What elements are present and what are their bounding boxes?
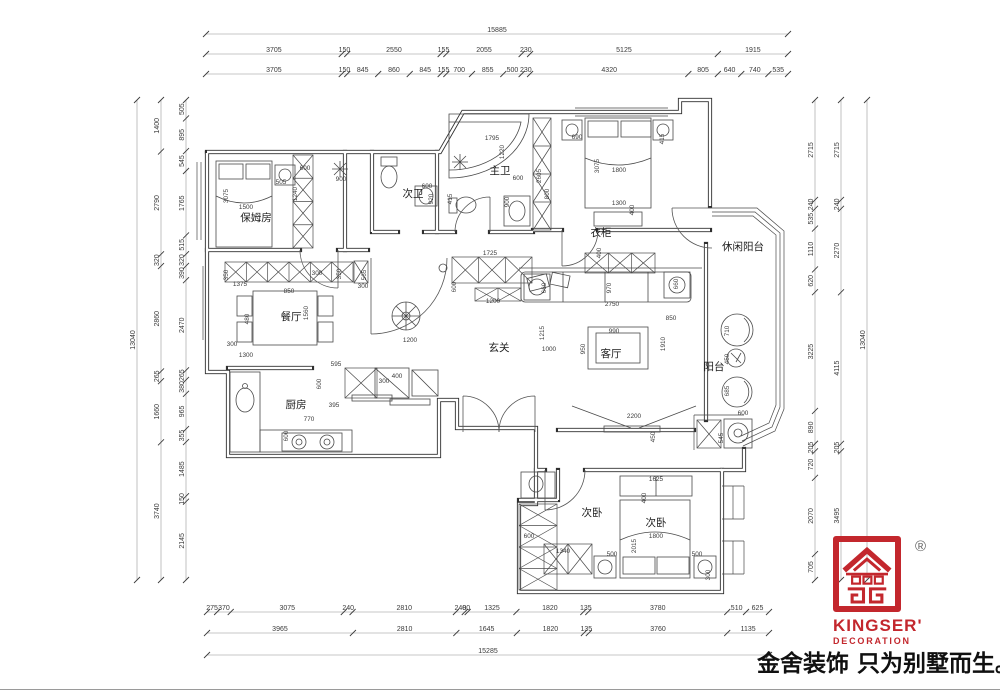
room-label: 客厅: [601, 347, 622, 360]
dim-label: 370: [218, 605, 230, 612]
dim-annotation: 1215: [539, 325, 546, 340]
dim-annotation: 600: [513, 175, 524, 182]
dim-label: 700: [453, 67, 465, 74]
kitchen-counter: [230, 368, 438, 452]
dim-annotation: 1375: [233, 281, 248, 288]
dim-label: 3075: [279, 605, 295, 612]
dim-label: 4115: [834, 360, 841, 375]
dim-label: 135: [581, 626, 593, 633]
dim-annotation: 3075: [594, 158, 601, 173]
dim-annotation: 600: [316, 378, 323, 389]
dim-annotation: 300: [705, 569, 712, 580]
dim-annotation: 920: [428, 193, 435, 204]
dim-label: 1110: [808, 242, 815, 257]
dim-label: 965: [179, 406, 186, 418]
dim-label: 2145: [179, 533, 186, 549]
dim-label: 500: [507, 67, 519, 74]
dim-annotation: 1000: [542, 346, 557, 353]
room-label: 阳台: [704, 360, 725, 373]
dim-row-bottom-total: 15285: [204, 648, 772, 658]
dim-label: 1400: [154, 118, 161, 134]
dim-label: 380: [179, 381, 186, 393]
dim-label: 510: [731, 605, 743, 612]
sheet-border-line: [0, 689, 1000, 690]
dim-annotation: 710: [724, 325, 731, 336]
dim-annotation: 660: [673, 278, 680, 289]
dim-annotation: 350: [336, 268, 343, 279]
dim-label: 230: [520, 67, 532, 74]
room-label: 次卧: [582, 506, 603, 519]
room-label: 餐厅: [281, 310, 302, 323]
dim-label: 80: [462, 605, 470, 612]
room-label: 次卫: [403, 187, 424, 200]
dim-annotation: 685: [724, 385, 731, 396]
dim-label: 2270: [834, 243, 841, 259]
dim-label: 3740: [154, 503, 161, 519]
dim-label: 205: [808, 442, 815, 454]
dim-annotation: 595: [331, 361, 342, 368]
dim-label: 2070: [808, 508, 815, 524]
dim-annotation: 395: [329, 402, 340, 409]
dim-label: 265: [179, 369, 186, 381]
windows: [197, 108, 784, 574]
dim-label: 1820: [543, 626, 559, 633]
dim-label: 855: [482, 67, 494, 74]
dim-annotation: 565: [361, 269, 368, 280]
dim-row-top-3: 3705150845860845155700855500230432080564…: [203, 67, 791, 77]
dim-label: 545: [179, 155, 186, 167]
dim-label: 150: [179, 493, 186, 505]
dim-label: 230: [520, 47, 532, 54]
dim-label: 625: [752, 605, 764, 612]
dim-annotation: 1200: [486, 298, 501, 305]
dim-annotation: 900: [336, 176, 347, 183]
dim-annotation: 600: [738, 410, 749, 417]
registered-mark: ®: [915, 538, 926, 555]
dim-row-right-total: 13040: [860, 97, 870, 583]
dim-label: 1820: [542, 605, 558, 612]
dim-annotation: 300: [358, 283, 369, 290]
dim-label: 3760: [650, 626, 666, 633]
dim-label: 13040: [130, 330, 137, 350]
dim-annotation: 400: [392, 373, 403, 380]
room-label: 衣柜: [591, 226, 612, 239]
dim-annotation: 1625: [649, 476, 664, 483]
dim-annotation: 850: [666, 315, 677, 322]
dim-label: 2790: [154, 195, 161, 211]
dim-label: 3965: [272, 626, 288, 633]
dim-label: 2715: [808, 142, 815, 158]
dim-label: 705: [808, 561, 815, 573]
logo-emblem: ®: [833, 536, 901, 612]
dim-annotation: 545: [718, 432, 725, 443]
dim-label: 845: [357, 67, 369, 74]
dim-label: 1135: [741, 626, 756, 633]
dim-annotation: 1220: [499, 144, 506, 159]
dim-label: 535: [772, 67, 784, 74]
dim-row-top-total: 15885: [203, 27, 791, 37]
dim-label: 1485: [179, 461, 186, 477]
dim-label: 1660: [154, 404, 161, 420]
dim-annotation: 600: [524, 533, 535, 540]
dim-annotation: 400: [596, 247, 603, 258]
dim-annotation: 400: [641, 492, 648, 503]
dimension-annotations: 3075150050560090012406009204151795122060…: [223, 133, 749, 580]
dim-annotation: 2200: [627, 413, 642, 420]
dim-row-bottom-2: 396528101645182013537601135: [204, 626, 772, 636]
dim-annotation: 1200: [403, 337, 418, 344]
dim-annotation: 770: [304, 416, 315, 423]
dim-annotation: 600: [451, 281, 458, 292]
dim-label: 155: [438, 67, 450, 74]
dim-label: 2055: [476, 47, 492, 54]
dim-label: 2860: [154, 311, 161, 327]
dim-label: 150: [339, 67, 351, 74]
dim-row-right-middle: 2715240227041152053495: [834, 97, 844, 583]
dim-label: 845: [419, 67, 431, 74]
dim-label: 2470: [179, 317, 186, 333]
logo-house-glyph: [839, 542, 895, 606]
dim-label: 240: [808, 198, 815, 210]
dim-annotation: 1910: [660, 336, 667, 351]
dim-label: 805: [697, 67, 709, 74]
dim-label: 320: [179, 254, 186, 266]
dim-annotation: 800: [544, 188, 551, 199]
dim-label: 1645: [479, 626, 495, 633]
dim-label: 3780: [650, 605, 666, 612]
dim-label: 3705: [266, 47, 282, 54]
dim-label: 275: [206, 605, 218, 612]
logo-brand-text: KINGSER': [833, 616, 953, 636]
dim-annotation: 600: [300, 165, 311, 172]
dim-label: 1765: [179, 195, 186, 211]
dim-label: 1915: [745, 47, 761, 54]
dim-annotation: 500: [692, 551, 703, 558]
dim-annotation: 300: [312, 270, 323, 277]
room-label: 次卧: [646, 516, 667, 529]
dim-annotation: 850: [284, 288, 295, 295]
dim-annotation: 3075: [223, 188, 230, 203]
dim-label: 860: [388, 67, 400, 74]
dim-label: 3225: [808, 344, 815, 360]
room-label: 保姆房: [240, 211, 272, 224]
dim-annotation: 1795: [485, 135, 500, 142]
kingser-logo: ® KINGSER' DECORATION: [833, 536, 953, 646]
dim-annotation: 1300: [612, 200, 627, 207]
dim-annotation: 600: [283, 430, 290, 441]
dim-annotation: 990: [609, 328, 620, 335]
dim-label: 890: [808, 421, 815, 433]
dim-annotation: 415: [659, 133, 666, 144]
company-slogan: 金舍装饰 只为别墅而生。: [757, 644, 1000, 678]
room-label: 休闲阳台: [722, 240, 764, 253]
dim-label: 535: [808, 213, 815, 225]
dim-annotation: 415: [447, 193, 454, 204]
dim-annotation: 450: [650, 431, 657, 442]
room-label: 主卫: [490, 165, 511, 177]
dim-label: 3705: [266, 67, 282, 74]
dim-label: 2810: [396, 605, 412, 612]
dim-annotation: 450: [724, 353, 731, 364]
room-label: 厨房: [286, 398, 307, 411]
dim-label: 155: [438, 47, 450, 54]
dim-annotation: 900: [504, 196, 511, 207]
dim-label: 13040: [860, 330, 867, 350]
room-label: 玄关: [489, 341, 510, 354]
dim-label: 1325: [484, 605, 500, 612]
dim-annotation: 660: [541, 282, 548, 293]
dim-label: 2810: [397, 626, 413, 633]
dim-annotation: 2015: [631, 538, 638, 553]
dim-label: 15285: [478, 648, 498, 655]
dim-label: 320: [154, 254, 161, 266]
dim-row-right-inner: 2715240535111062032258902057202070705: [808, 97, 818, 583]
dim-label: 740: [749, 67, 761, 74]
dim-label: 620: [808, 275, 815, 287]
dim-label: 15885: [487, 27, 507, 34]
foyer-round-table: [392, 264, 447, 330]
dim-label: 205: [834, 442, 841, 454]
dim-annotation: 350: [223, 269, 230, 280]
dim-annotation: 1800: [612, 167, 627, 174]
dim-annotation: 1240: [292, 186, 299, 201]
dim-annotation: 1725: [483, 250, 498, 257]
dim-label: 390: [179, 267, 186, 279]
dim-row-top-2: 37051502550155205523051251915: [203, 47, 791, 57]
dim-label: 135: [580, 605, 592, 612]
dim-row-left-inner: 5058955451765515320390247026538096535514…: [179, 97, 189, 583]
dim-label: 3495: [834, 508, 841, 524]
dim-annotation: 300: [379, 378, 390, 385]
dim-annotation: 1800: [649, 533, 664, 540]
dim-annotation: 500: [607, 551, 618, 558]
dim-label: 240: [834, 198, 841, 210]
dim-row-bottom-1: 2753703075240281024080132518201353780510…: [204, 605, 772, 615]
room-labels: 保姆房次卫主卫衣柜休闲阳台餐厅玄关客厅阳台厨房次卧次卧: [240, 165, 764, 529]
dim-label: 240: [342, 605, 354, 612]
dim-label: 895: [179, 129, 186, 141]
dim-label: 150: [339, 47, 351, 54]
dim-annotation: 950: [580, 343, 587, 354]
ceiling-light-symbols: [332, 154, 468, 177]
dim-label: 2715: [834, 142, 841, 158]
dim-label: 355: [179, 430, 186, 442]
dim-annotation: 400: [629, 204, 636, 215]
dim-label: 720: [808, 459, 815, 471]
dim-row-left-middle: 14002790320286026516603740: [154, 97, 164, 583]
dim-annotation: 690: [572, 134, 583, 141]
dim-label: 2550: [386, 47, 402, 54]
dim-annotation: 1560: [303, 305, 310, 320]
dim-annotation: 300: [227, 341, 238, 348]
dim-annotation: 505: [276, 179, 287, 186]
dim-label: 265: [154, 370, 161, 382]
dim-annotation: 2750: [605, 301, 620, 308]
dim-annotation: 970: [606, 282, 613, 293]
dim-annotation: 1500: [239, 204, 254, 211]
dim-annotation: 1340: [556, 548, 571, 555]
dim-annotation: 1300: [239, 352, 254, 359]
dim-label: 515: [179, 239, 186, 251]
dim-label: 5125: [616, 47, 632, 54]
dim-row-left-total: 13040: [130, 97, 140, 583]
dim-label: 640: [724, 67, 736, 74]
dim-label: 505: [179, 103, 186, 115]
dim-annotation: 2605: [536, 168, 543, 183]
dim-label: 4320: [601, 67, 617, 74]
dim-annotation: 480: [244, 313, 251, 324]
